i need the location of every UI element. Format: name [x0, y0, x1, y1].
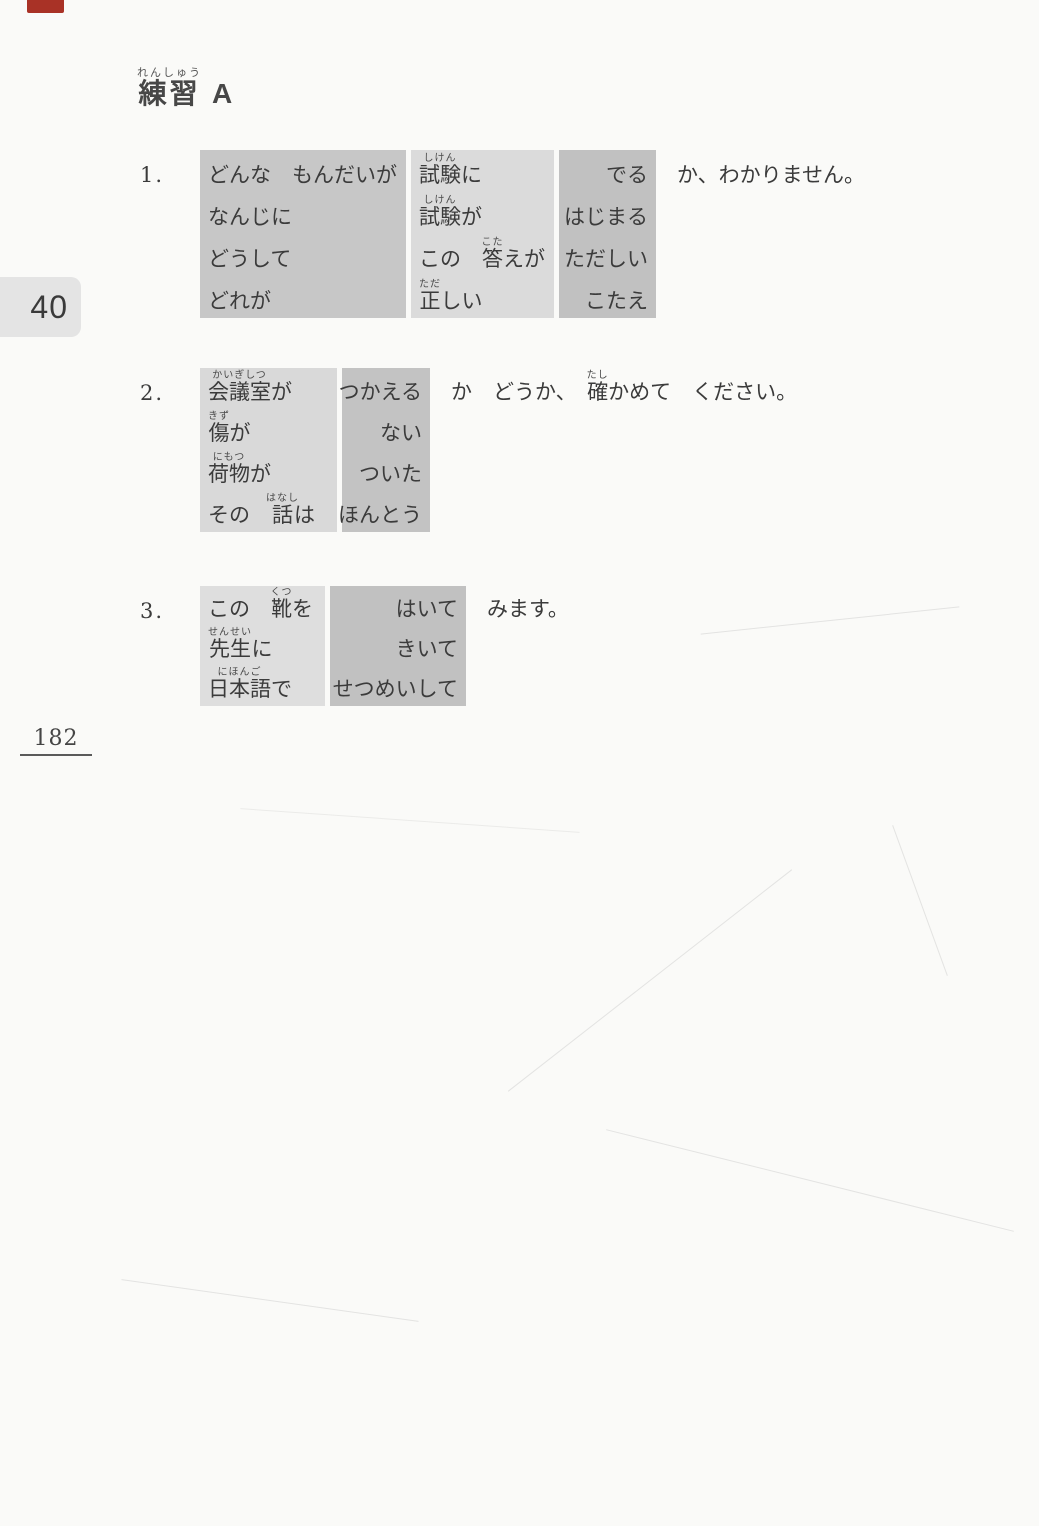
table-cell: はいて — [330, 586, 466, 626]
kanji-with-furigana: 日本語にほんご — [208, 677, 271, 701]
table-row: 先生せんせいにきいて — [200, 626, 577, 666]
furigana: はなし — [266, 493, 299, 504]
table-cell: ただしい — [559, 234, 656, 276]
kanji-with-furigana: 会議室かいぎしつ — [208, 380, 271, 404]
table-row: その 話はなしはほんとう — [200, 491, 805, 532]
cell-text: つかえる — [339, 382, 422, 403]
exercise-1: 1.どんな もんだいが試験しけんにでるか、わかりません。なんじに試験しけんがはじ… — [140, 150, 873, 318]
furigana: れんしゅう — [137, 66, 202, 79]
textbook-page: 40 練習れんしゅう A 1.どんな もんだいが試験しけんにでるか、わかりません… — [0, 0, 1039, 1526]
cell-text: この 靴くつを — [208, 587, 313, 620]
kanji-with-furigana: 試験しけん — [419, 205, 461, 229]
furigana: こた — [482, 237, 504, 248]
table-row: どんな もんだいが試験しけんにでるか、わかりません。 — [200, 150, 873, 192]
table-cell: ない — [342, 409, 430, 450]
furigana: かいぎしつ — [208, 370, 271, 381]
cell-text: こたえ — [585, 291, 648, 312]
furigana: ただ — [419, 279, 441, 290]
furigana: にもつ — [208, 452, 250, 463]
furigana: せんせい — [208, 627, 252, 638]
exercise-number: 3. — [140, 586, 200, 623]
scan-scratch — [701, 606, 960, 634]
table-cell: こたえ — [559, 276, 656, 318]
cell-text: 傷きずが — [208, 411, 251, 444]
table-cell: つかえる — [342, 368, 430, 409]
substitution-table: どんな もんだいが試験しけんにでるか、わかりません。なんじに試験しけんがはじまる… — [200, 150, 873, 318]
cell-text: どれが — [208, 291, 271, 312]
page-number: 182 — [20, 726, 92, 756]
cell-text: その 話はなしは — [208, 493, 315, 526]
table-cell: 傷きずが — [200, 409, 337, 450]
table-cell: はじまる — [559, 192, 656, 234]
kanji-with-furigana: 練習れんしゅう — [137, 78, 201, 109]
exercise-3: 3.この 靴くつをはいてみます。先生せんせいにきいて日本語にほんごでせつめいして — [140, 586, 577, 706]
sentence-tail: みます。 — [471, 586, 577, 626]
cell-text: 正ただしい — [419, 279, 483, 312]
table-cell: この 答こたえが — [411, 234, 554, 276]
cell-text: ただしい — [564, 249, 648, 270]
cell-text: みます。 — [487, 599, 569, 620]
kanji-with-furigana: 靴くつ — [271, 597, 292, 621]
furigana: にほんご — [208, 667, 271, 678]
table-cell: 正ただしい — [411, 276, 554, 318]
table-row: なんじに試験しけんがはじまる — [200, 192, 873, 234]
table-cell: でる — [559, 150, 656, 192]
cell-text: か、わかりません。 — [677, 165, 865, 186]
cell-text: きいて — [396, 639, 458, 660]
cell-text: この 答こたえが — [419, 237, 545, 270]
scan-scratch — [508, 869, 792, 1091]
table-row: 日本語にほんごでせつめいして — [200, 666, 577, 706]
table-cell: どうして — [200, 234, 406, 276]
table-cell: 日本語にほんごで — [200, 666, 325, 706]
kanji-with-furigana: 試験しけん — [419, 163, 461, 187]
table-cell: 荷物にもつが — [200, 450, 337, 491]
chapter-number: 40 — [30, 289, 68, 326]
cell-text: ない — [380, 423, 422, 444]
table-cell: この 靴くつを — [200, 586, 325, 626]
cell-text: はじまる — [564, 207, 648, 228]
cell-text: 日本語にほんごで — [208, 667, 292, 700]
table-cell: ほんとう — [342, 491, 430, 532]
cell-text: 先生せんせいに — [208, 627, 273, 660]
scan-scratch — [240, 808, 579, 833]
cell-text: でる — [606, 165, 648, 186]
cell-text: ついた — [359, 464, 422, 485]
scan-scratch — [606, 1129, 1014, 1232]
kanji-with-furigana: 答こた — [482, 247, 503, 271]
cell-text: か どうか、 確たしかめて ください。 — [451, 370, 797, 403]
cell-text: せつめいして — [333, 679, 458, 700]
cell-text: なんじに — [208, 207, 292, 228]
table-cell: 会議室かいぎしつが — [200, 368, 337, 409]
table-row: 傷きずがない — [200, 409, 805, 450]
substitution-table: 会議室かいぎしつがつかえるか どうか、 確たしかめて ください。傷きずがない荷物… — [200, 368, 805, 532]
table-cell: 試験しけんに — [411, 150, 554, 192]
scan-scratch — [892, 825, 948, 976]
furigana: しけん — [419, 195, 461, 206]
furigana: たし — [587, 370, 609, 381]
kanji-with-furigana: 荷物にもつ — [208, 462, 250, 486]
kanji-with-furigana: 確たし — [587, 380, 608, 404]
table-row: 会議室かいぎしつがつかえるか どうか、 確たしかめて ください。 — [200, 368, 805, 409]
substitution-table: この 靴くつをはいてみます。先生せんせいにきいて日本語にほんごでせつめいして — [200, 586, 577, 706]
table-cell: せつめいして — [330, 666, 466, 706]
table-cell: なんじに — [200, 192, 406, 234]
kanji-with-furigana: 先生せんせい — [208, 637, 252, 661]
cell-text: ほんとう — [338, 505, 422, 526]
table-cell: きいて — [330, 626, 466, 666]
cell-text: はいて — [396, 599, 458, 620]
cell-text: 荷物にもつが — [208, 452, 271, 485]
furigana: しけん — [419, 153, 461, 164]
kanji-with-furigana: 正ただ — [419, 289, 441, 313]
cell-text: 試験しけんが — [419, 195, 482, 228]
table-row: 荷物にもつがついた — [200, 450, 805, 491]
table-row: どれが正ただしいこたえ — [200, 276, 873, 318]
table-cell: ついた — [342, 450, 430, 491]
page-title: 練習れんしゅう A — [137, 66, 235, 112]
table-row: どうしてこの 答こたえがただしい — [200, 234, 873, 276]
sentence-tail: か どうか、 確たしかめて ください。 — [435, 368, 805, 409]
chapter-tab: 40 — [0, 277, 81, 337]
table-cell: 試験しけんが — [411, 192, 554, 234]
table-cell: どれが — [200, 276, 406, 318]
exercise-number: 1. — [140, 150, 200, 187]
cell-text: 会議室かいぎしつが — [208, 370, 292, 403]
table-cell: どんな もんだいが — [200, 150, 406, 192]
cell-text: どうして — [208, 249, 291, 270]
kanji-with-furigana: 傷きず — [208, 421, 230, 445]
furigana: きず — [208, 411, 230, 422]
table-cell: 先生せんせいに — [200, 626, 325, 666]
scan-scratch — [121, 1279, 418, 1322]
exercise-2: 2.会議室かいぎしつがつかえるか どうか、 確たしかめて ください。傷きずがない… — [140, 368, 805, 532]
table-row: この 靴くつをはいてみます。 — [200, 586, 577, 626]
cell-text: どんな もんだいが — [208, 165, 397, 186]
cell-text: 試験しけんに — [419, 153, 482, 186]
furigana: くつ — [271, 587, 293, 598]
page-edge-red-mark — [27, 0, 64, 13]
table-cell: その 話はなしは — [200, 491, 337, 532]
kanji-with-furigana: 話はなし — [271, 503, 294, 527]
exercise-number: 2. — [140, 368, 200, 405]
sentence-tail: か、わかりません。 — [661, 150, 873, 192]
